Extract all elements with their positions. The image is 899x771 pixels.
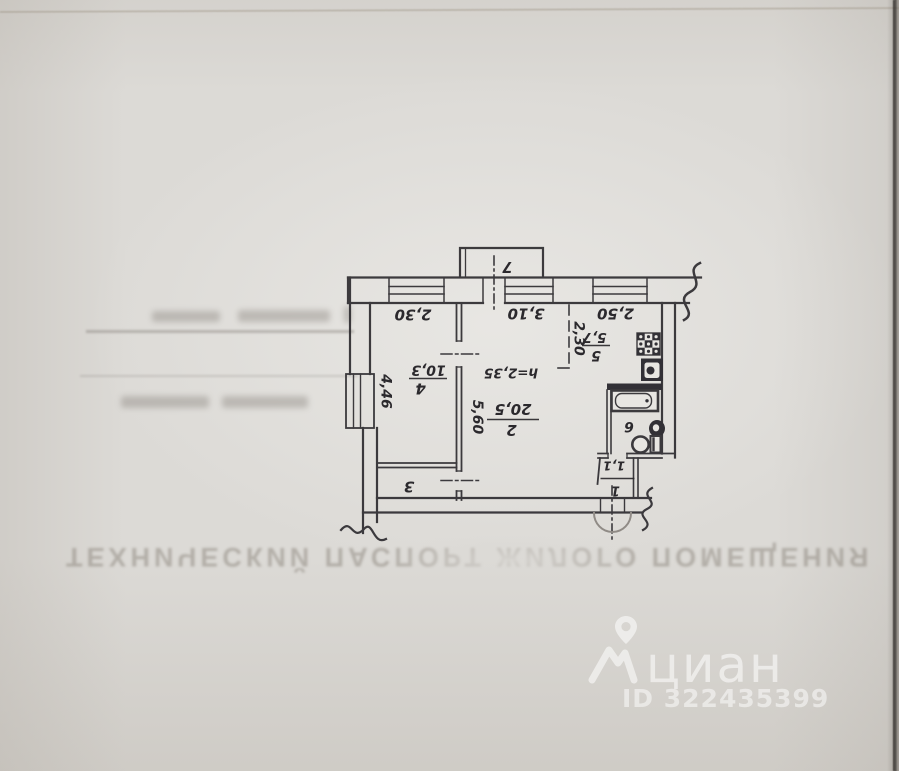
wall-break-symbol xyxy=(642,488,652,530)
balcony-outline xyxy=(460,248,543,277)
kitchen-sink-icon xyxy=(641,359,663,382)
area-hall: 1,1 xyxy=(603,459,625,474)
page-edge-line xyxy=(893,0,895,771)
room-number-kitchen: 5 xyxy=(591,347,601,363)
area-kitchen: 5,7 xyxy=(582,329,607,345)
kitchen-bath-divider-wall xyxy=(607,384,662,391)
partition-room4-room2 xyxy=(457,303,462,500)
watermark-id: ID 322435399 xyxy=(622,684,829,713)
wall-break-symbol xyxy=(684,263,700,320)
window-kitchen xyxy=(593,287,647,295)
scanned-floorplan-page: ТЕХНИЧЕСКИЙ ПАСПОРТ ЖИЛОГО ПОМЕЩЕНИЯ xyxy=(0,0,899,771)
room-number-balcony: 7 xyxy=(502,258,513,276)
bathtub-icon xyxy=(612,391,659,412)
stove-icon xyxy=(637,333,660,355)
dim-room4-depth: 4,46 xyxy=(378,373,394,409)
kitchen-dashed-boundary xyxy=(558,305,569,368)
room-number-bathroom: 6 xyxy=(624,418,634,434)
mountain-peaks-icon xyxy=(592,650,634,680)
area-room2: 20,5 xyxy=(494,400,531,418)
dim-room2-width: 3,10 xyxy=(507,305,544,323)
washbasin-icon xyxy=(649,420,665,437)
right-exterior-wall xyxy=(662,303,675,458)
toilet-icon xyxy=(632,436,660,453)
window-room4 xyxy=(389,287,444,295)
area-room4: 10,3 xyxy=(411,362,446,378)
pin-icon xyxy=(615,616,637,644)
dim-room4-width: 2,30 xyxy=(394,306,431,324)
ceiling-height-note: h=2,35 xyxy=(484,365,538,381)
cian-logo xyxy=(588,614,648,684)
room-number-room3: 3 xyxy=(404,478,414,496)
room3-wall xyxy=(377,463,457,468)
window-jambs xyxy=(389,278,647,304)
window-room2 xyxy=(505,287,553,295)
dim-room2-depth: 5,60 xyxy=(469,400,485,435)
left-exterior-wall xyxy=(341,278,386,541)
bathroom-bottom-wall xyxy=(598,454,675,459)
room-number-room2: 2 xyxy=(506,421,516,439)
room-number-room4: 4 xyxy=(415,380,426,398)
dim-kitchen-width: 2,50 xyxy=(597,305,634,323)
room-number-hall: 1 xyxy=(611,483,620,498)
